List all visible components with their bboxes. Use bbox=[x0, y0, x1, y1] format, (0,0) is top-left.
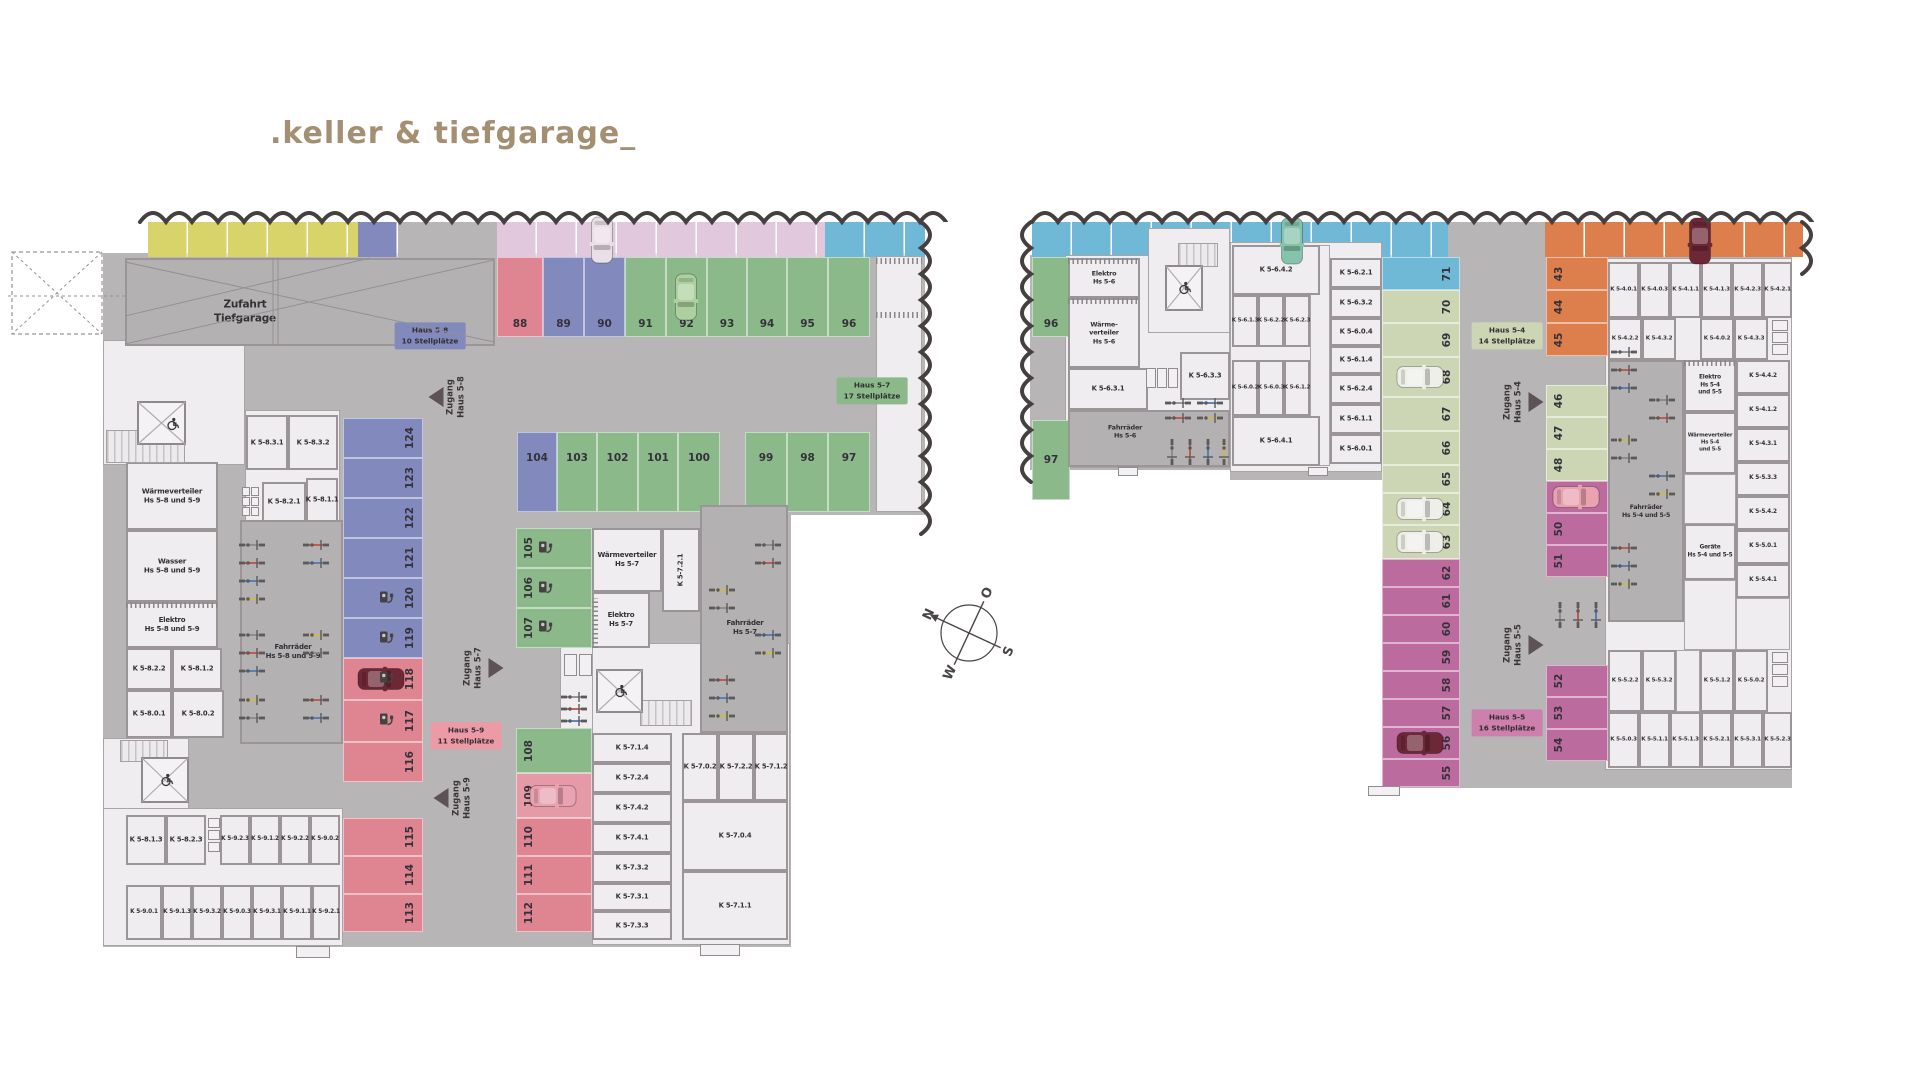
room-label: K 5-9.1.1 bbox=[283, 909, 311, 917]
parking-stall-number-102: 102 bbox=[607, 452, 629, 464]
room-label: K 5-5.2.1 bbox=[1703, 736, 1730, 743]
room-label: K 5-5.4.2 bbox=[1749, 509, 1777, 517]
parking-stall-number-107: 107 bbox=[523, 617, 535, 639]
parking-stall-number-91: 91 bbox=[638, 318, 653, 330]
parking-stall-number-63: 63 bbox=[1441, 535, 1453, 550]
room-label: K 5-9.0.2 bbox=[311, 836, 339, 844]
parking-stall-number-96: 96 bbox=[1044, 318, 1059, 330]
room-label: K 5-6.4.1 bbox=[1260, 437, 1293, 446]
room-label: K 5-9.2.3 bbox=[221, 836, 249, 844]
parking-stall-number-92: 92 bbox=[679, 318, 694, 330]
zugang-arrow-right bbox=[1529, 392, 1544, 412]
parking-stall-100 bbox=[678, 432, 720, 512]
storage-box bbox=[296, 946, 330, 958]
parking-stall-number-117: 117 bbox=[404, 710, 416, 732]
right-plan-room-block bbox=[1684, 474, 1736, 524]
room-label: K 5-5.2.3 bbox=[1764, 736, 1791, 743]
room-fahrr-der bbox=[1608, 360, 1684, 622]
room-label: K 5-4.3.3 bbox=[1738, 335, 1765, 342]
room-label: K 5-4.2.1 bbox=[1764, 286, 1791, 293]
room-label: K 5-5.1.1 bbox=[1641, 736, 1668, 743]
parking-stall-number-71: 71 bbox=[1441, 266, 1453, 281]
room-label: K 5-7.2.2 bbox=[720, 763, 753, 772]
parking-stall-number-46: 46 bbox=[1553, 394, 1565, 409]
room-label: K 5-9.3.1 bbox=[253, 909, 281, 917]
room-label: K 5-5.3.3 bbox=[1749, 475, 1777, 483]
room-label: Wärme- verteiler Hs 5-6 bbox=[1089, 320, 1119, 345]
storage-box bbox=[1308, 467, 1328, 476]
room-label: Elektro Hs 5-7 bbox=[608, 611, 635, 629]
parking-stall-number-122: 122 bbox=[404, 507, 416, 529]
room-label: K 5-4.4.2 bbox=[1749, 373, 1777, 381]
parking-stall-number-119: 119 bbox=[404, 627, 416, 649]
storage-box bbox=[1772, 332, 1788, 343]
parking-stall-number-99: 99 bbox=[759, 452, 774, 464]
room-label: K 5-7.3.3 bbox=[616, 921, 649, 930]
room-label: K 5-7.2.4 bbox=[616, 774, 649, 783]
tear-mask bbox=[140, 192, 946, 222]
storage-box bbox=[1146, 368, 1156, 388]
room-label: K 5-4.3.2 bbox=[1646, 335, 1673, 342]
parking-stall-number-66: 66 bbox=[1441, 441, 1453, 456]
parking-stall-number-47: 47 bbox=[1553, 426, 1565, 441]
parking-stall-number-105: 105 bbox=[523, 537, 535, 559]
page-title: .keller & tiefgarage_ bbox=[270, 116, 636, 151]
parking-stall-number-104: 104 bbox=[526, 452, 548, 464]
room-label: Wärmeverteiler Hs 5-7 bbox=[598, 551, 657, 569]
room-label: K 5-9.1.2 bbox=[251, 836, 279, 844]
parking-stall-number-50: 50 bbox=[1553, 522, 1565, 537]
wall-hatch bbox=[876, 312, 922, 318]
parking-stall-number-43: 43 bbox=[1553, 266, 1565, 281]
room-label: Wasser Hs 5-8 und 5-9 bbox=[144, 557, 200, 576]
right-plan-color-strip bbox=[1545, 222, 1803, 257]
room-fahrr-der bbox=[240, 520, 343, 744]
storage-box bbox=[1772, 676, 1788, 687]
room-label: K 5-7.2.1 bbox=[677, 554, 686, 587]
storage-box bbox=[1772, 320, 1788, 331]
zugang-label: Zugang Haus 5-8 bbox=[445, 376, 468, 418]
room-label: Elektro Hs 5-6 bbox=[1092, 270, 1117, 287]
room-label: K 5-4.1.2 bbox=[1749, 407, 1777, 415]
room-label: K 5-5.2.2 bbox=[1612, 677, 1639, 684]
parking-stall-number-111: 111 bbox=[523, 864, 535, 886]
haus-badge: Haus 5-7 17 Stellplätze bbox=[837, 377, 908, 404]
parking-stall-number-93: 93 bbox=[720, 318, 735, 330]
parking-stall-number-97: 97 bbox=[842, 452, 857, 464]
parking-stall-97 bbox=[828, 432, 870, 512]
room-label: K 5-6.2.1 bbox=[1340, 269, 1373, 278]
storage-box bbox=[242, 507, 250, 516]
room-label: K 5-7.0.2 bbox=[684, 763, 717, 772]
parking-stall-number-116: 116 bbox=[404, 751, 416, 773]
room-label: K 5-6.2.3 bbox=[1284, 317, 1311, 324]
room-label: K 5-9.3.2 bbox=[193, 909, 221, 917]
room-label: K 5-5.4.1 bbox=[1749, 577, 1777, 585]
room-label: K 5-6.0.2 bbox=[1232, 384, 1259, 391]
parking-stall-number-124: 124 bbox=[404, 427, 416, 449]
haus-badge: Haus 5-9 11 Stellplätze bbox=[431, 722, 502, 749]
room-label: K 5-6.4.2 bbox=[1260, 266, 1293, 275]
room-label: K 5-6.3.2 bbox=[1340, 299, 1373, 308]
room-label: K 5-9.2.2 bbox=[281, 836, 309, 844]
room-label: K 5-8.1.1 bbox=[306, 496, 339, 505]
floorplan-canvas: .keller & tiefgarage_ 888990919293949596… bbox=[0, 0, 1920, 1080]
room-label: K 5-4.2.3 bbox=[1734, 286, 1761, 293]
room-label: K 5-5.0.1 bbox=[1749, 543, 1777, 551]
room-label: K 5-4.1.3 bbox=[1703, 286, 1730, 293]
parking-stall-number-49: 49 bbox=[1553, 490, 1565, 505]
room-label: Fahrräder Hs 5-6 bbox=[1108, 424, 1142, 441]
compass-rose: NOSW bbox=[920, 585, 1018, 683]
left-plan-color-strip bbox=[358, 222, 398, 257]
room-label: K 5-7.3.2 bbox=[616, 864, 649, 873]
room-label: Fahrräder Hs 5-8 und 5-9 bbox=[266, 643, 321, 661]
room-label: K 5-5.0.3 bbox=[1610, 736, 1637, 743]
right-plan-corridor-area bbox=[1448, 222, 1545, 257]
room-label: K 5-7.1.1 bbox=[719, 901, 752, 910]
tear-mask bbox=[1032, 192, 1812, 222]
compass-east: O bbox=[978, 585, 996, 601]
storage-box bbox=[208, 818, 220, 828]
room-label: K 5-7.1.4 bbox=[616, 744, 649, 753]
right-plan-room-block bbox=[1676, 650, 1700, 712]
parking-stall-number-59: 59 bbox=[1441, 650, 1453, 665]
tear-mask bbox=[997, 222, 1031, 482]
room-label: K 5-5.3.1 bbox=[1734, 736, 1761, 743]
parking-stall-104 bbox=[517, 432, 557, 512]
room-label: K 5-6.1.1 bbox=[1340, 415, 1373, 424]
storage-box bbox=[700, 944, 740, 956]
parking-stall-number-108: 108 bbox=[523, 740, 535, 762]
parking-stall-number-67: 67 bbox=[1441, 407, 1453, 422]
parking-stall-number-64: 64 bbox=[1441, 502, 1453, 517]
left-plan-color-strip bbox=[825, 222, 925, 257]
room-label: K 5-6.1.3 bbox=[1232, 317, 1259, 324]
parking-stall-number-70: 70 bbox=[1441, 299, 1453, 314]
room-label: K 5-9.0.3 bbox=[223, 909, 251, 917]
room-label: K 5-6.2.2 bbox=[1258, 317, 1285, 324]
storage-box bbox=[251, 507, 259, 516]
parking-stall-number-97: 97 bbox=[1044, 454, 1059, 466]
room-label: Fahrräder Hs 5-4 und 5-5 bbox=[1622, 504, 1670, 520]
room-label: K 5-8.3.1 bbox=[251, 438, 284, 447]
room-label: K 5-4.0.2 bbox=[1704, 335, 1731, 342]
stairs bbox=[640, 700, 692, 726]
room-label: K 5-8.2.1 bbox=[268, 498, 301, 507]
zugang-label: Zugang Haus 5-5 bbox=[1502, 624, 1525, 666]
storage-box bbox=[1368, 786, 1400, 796]
storage-box bbox=[1772, 344, 1788, 355]
compass-north: N bbox=[920, 606, 938, 622]
storage-box bbox=[242, 497, 250, 506]
stairs bbox=[120, 740, 168, 762]
parking-stall-number-94: 94 bbox=[760, 318, 775, 330]
zugang-label: Zugang Haus 5-9 bbox=[451, 777, 474, 819]
room-label: K 5-8.1.2 bbox=[181, 665, 214, 674]
torn-edge bbox=[1032, 213, 1812, 222]
room-label: K 5-4.3.1 bbox=[1749, 441, 1777, 449]
parking-stall-103 bbox=[557, 432, 597, 512]
storage-box bbox=[579, 654, 592, 676]
parking-stall-number-121: 121 bbox=[404, 547, 416, 569]
torn-edge bbox=[1802, 222, 1811, 274]
parking-stall-number-89: 89 bbox=[556, 318, 571, 330]
storage-box bbox=[242, 487, 250, 496]
room-label: K 5-7.4.1 bbox=[616, 834, 649, 843]
storage-box bbox=[564, 654, 577, 676]
room-label: K 5-4.2.2 bbox=[1612, 335, 1639, 342]
parking-stall-number-65: 65 bbox=[1441, 472, 1453, 487]
tear-mask bbox=[1802, 222, 1836, 274]
room-label: K 5-7.1.2 bbox=[755, 763, 788, 772]
room-label: K 5-9.0.1 bbox=[130, 909, 158, 917]
parking-stall-number-114: 114 bbox=[404, 864, 416, 886]
parking-stall-number-56: 56 bbox=[1441, 736, 1453, 751]
parking-stall-number-98: 98 bbox=[800, 452, 815, 464]
stairs bbox=[1178, 243, 1218, 267]
right-plan-room-block bbox=[1684, 580, 1736, 650]
room-label: K 5-4.1.1 bbox=[1672, 286, 1699, 293]
parking-stall-number-96: 96 bbox=[842, 318, 857, 330]
storage-box bbox=[208, 830, 220, 840]
room-label: K 5-8.0.2 bbox=[182, 710, 215, 719]
haus-badge: Haus 5-8 10 Stellplätze bbox=[395, 322, 466, 349]
zugang-arrow-left bbox=[434, 788, 449, 808]
parking-stall-number-62: 62 bbox=[1441, 566, 1453, 581]
parking-stall-number-88: 88 bbox=[513, 318, 528, 330]
wall-hatch bbox=[592, 598, 598, 648]
wall-hatch bbox=[1684, 360, 1736, 366]
parking-stall-number-106: 106 bbox=[523, 577, 535, 599]
zugang-label: Zugang Haus 5-4 bbox=[1502, 381, 1525, 423]
parking-stall-number-68: 68 bbox=[1441, 370, 1453, 385]
garage-entry-outline bbox=[12, 252, 102, 334]
room-label: Fahrräder Hs 5-7 bbox=[726, 619, 763, 637]
room-label: K 5-5.1.3 bbox=[1672, 736, 1699, 743]
room-label: K 5-8.3.2 bbox=[297, 438, 330, 447]
left-plan-color-strip bbox=[148, 222, 358, 257]
room-label: K 5-6.3.3 bbox=[1189, 372, 1222, 381]
parking-stall-number-45: 45 bbox=[1553, 332, 1565, 347]
parking-stall-number-52: 52 bbox=[1553, 674, 1565, 689]
parking-stall-102 bbox=[597, 432, 638, 512]
parking-stall-number-53: 53 bbox=[1553, 706, 1565, 721]
right-plan-room-block bbox=[1736, 598, 1790, 650]
parking-stall-number-60: 60 bbox=[1441, 622, 1453, 637]
room-label: K 5-4.0.1 bbox=[1610, 286, 1637, 293]
zugang-arrow-right bbox=[489, 658, 504, 678]
storage-box bbox=[1772, 652, 1788, 663]
parking-stall-99 bbox=[745, 432, 787, 512]
zugang-arrow-left bbox=[429, 387, 444, 407]
parking-stall-number-101: 101 bbox=[647, 452, 669, 464]
parking-stall-number-61: 61 bbox=[1441, 594, 1453, 609]
tear-mask bbox=[921, 222, 955, 534]
room-label: K 5-6.0.3 bbox=[1258, 384, 1285, 391]
room-label: K 5-7.3.1 bbox=[616, 893, 649, 902]
stairs bbox=[106, 430, 185, 463]
storage-box bbox=[208, 842, 220, 852]
compass-west: W bbox=[941, 663, 961, 682]
parking-stall-number-57: 57 bbox=[1441, 706, 1453, 721]
wall-hatch bbox=[876, 258, 922, 264]
parking-stall-number-48: 48 bbox=[1553, 458, 1565, 473]
wall-hatch bbox=[126, 602, 218, 608]
parking-stall-number-69: 69 bbox=[1441, 333, 1453, 348]
room-label: Elektro Hs 5-8 und 5-9 bbox=[145, 616, 200, 634]
parking-stall-98 bbox=[787, 432, 828, 512]
parking-stall-number-58: 58 bbox=[1441, 678, 1453, 693]
room-label: K 5-8.2.2 bbox=[133, 665, 166, 674]
room-label: Elektro Hs 5-4 und 5-5 bbox=[1698, 375, 1722, 398]
room-label: K 5-7.0.4 bbox=[719, 832, 752, 841]
compass-south: S bbox=[1000, 644, 1018, 659]
parking-stall-number-115: 115 bbox=[404, 826, 416, 848]
storage-box bbox=[251, 487, 259, 496]
room-label: Geräte Hs 5-4 und 5-5 bbox=[1688, 544, 1733, 559]
room-fahrr-der bbox=[1068, 410, 1230, 467]
storage-box bbox=[1772, 664, 1788, 675]
parking-stall-number-90: 90 bbox=[597, 318, 612, 330]
wall-hatch bbox=[1068, 258, 1140, 264]
room-label: K 5-6.3.1 bbox=[1092, 385, 1125, 394]
room-label: K 5-8.0.1 bbox=[133, 710, 166, 719]
room-label: K 5-8.1.3 bbox=[130, 836, 163, 845]
parking-stall-number-123: 123 bbox=[404, 467, 416, 489]
parking-stall-number-44: 44 bbox=[1553, 299, 1565, 314]
parking-stall-number-95: 95 bbox=[800, 318, 815, 330]
zugang-label: Zugang Haus 5-7 bbox=[462, 647, 485, 689]
left-plan-color-strip bbox=[497, 222, 825, 257]
parking-stall-number-55: 55 bbox=[1441, 766, 1453, 781]
room-label: K 5-5.1.2 bbox=[1704, 677, 1731, 684]
storage-box bbox=[1168, 368, 1178, 388]
room-label: K 5-9.2.1 bbox=[312, 909, 340, 917]
parking-stall-number-112: 112 bbox=[523, 902, 535, 924]
room-label: K 5-6.0.4 bbox=[1340, 328, 1373, 337]
room-label: K 5-6.0.1 bbox=[1340, 445, 1373, 454]
storage-box bbox=[251, 497, 259, 506]
room-label: Wärmeverteiler Hs 5-8 und 5-9 bbox=[142, 487, 202, 506]
storage-box bbox=[1118, 467, 1138, 476]
room-label: Wärmeverteiler Hs 5-4 und 5-5 bbox=[1688, 432, 1733, 453]
haus-badge: Haus 5-5 16 Stellplätze bbox=[1472, 709, 1543, 736]
room-label: K 5-4.0.3 bbox=[1641, 286, 1668, 293]
parking-stall-number-54: 54 bbox=[1553, 738, 1565, 753]
room-label: K 5-5.0.2 bbox=[1738, 677, 1765, 684]
room-label: K 5-6.1.4 bbox=[1340, 356, 1373, 365]
parking-stall-number-103: 103 bbox=[566, 452, 588, 464]
parking-stall-number-110: 110 bbox=[523, 826, 535, 848]
haus-badge: Haus 5-4 14 Stellplätze bbox=[1472, 322, 1543, 349]
room-label: Zufahrt Tiefgarage bbox=[214, 298, 276, 325]
room-label: K 5-6.2.4 bbox=[1340, 385, 1373, 394]
parking-stall-number-109: 109 bbox=[523, 785, 535, 807]
room-label: K 5-7.4.2 bbox=[616, 804, 649, 813]
torn-edge bbox=[140, 213, 946, 222]
room-label: K 5-8.2.3 bbox=[170, 836, 203, 845]
storage-box bbox=[1157, 368, 1167, 388]
parking-stall-number-113: 113 bbox=[404, 902, 416, 924]
left-plan-corridor-area bbox=[398, 222, 497, 257]
parking-stall-101 bbox=[638, 432, 678, 512]
parking-stall-number-120: 120 bbox=[404, 587, 416, 609]
zugang-arrow-right bbox=[1529, 635, 1544, 655]
room-label: K 5-6.1.2 bbox=[1284, 384, 1311, 391]
parking-stall-number-51: 51 bbox=[1553, 554, 1565, 569]
wall-hatch bbox=[1068, 298, 1140, 304]
room-label: K 5-5.3.2 bbox=[1646, 677, 1673, 684]
parking-stall-number-118: 118 bbox=[404, 668, 416, 690]
room-label: K 5-9.1.3 bbox=[163, 909, 191, 917]
parking-stall-number-100: 100 bbox=[688, 452, 710, 464]
